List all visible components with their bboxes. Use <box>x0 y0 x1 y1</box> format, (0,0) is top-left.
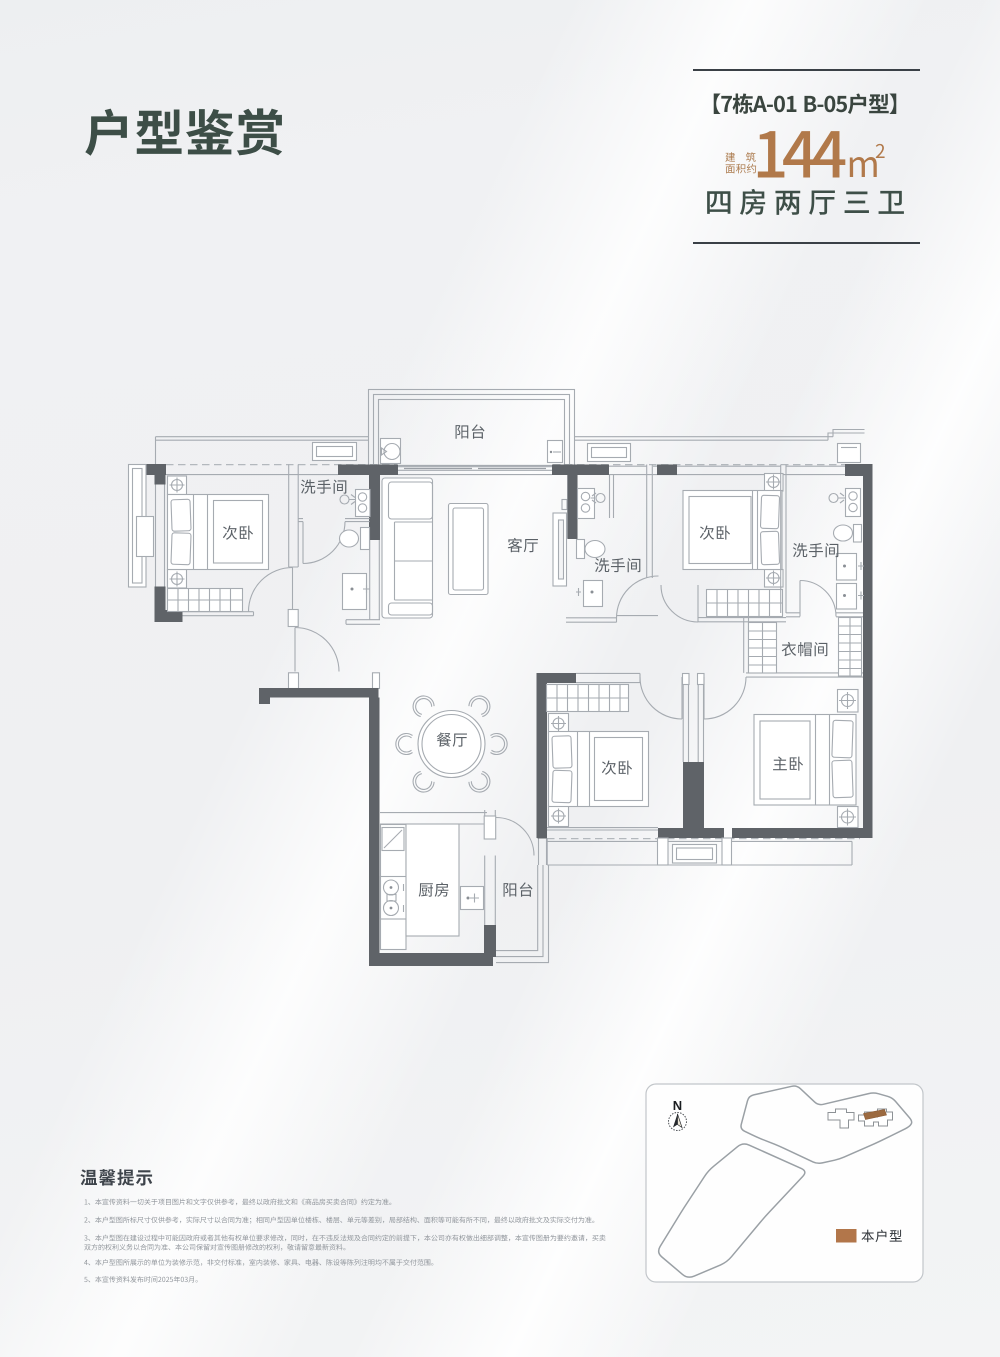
svg-text:N: N <box>673 1098 682 1113</box>
